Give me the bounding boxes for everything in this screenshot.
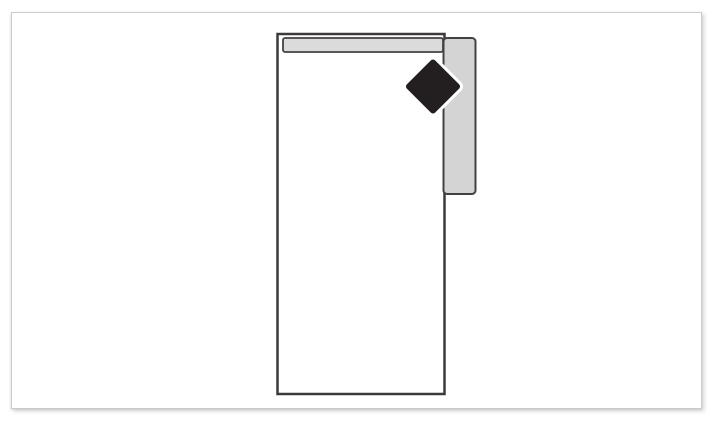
top-rail: [283, 38, 443, 52]
right-side-rail: [444, 38, 476, 194]
furniture-plan-diagram: [0, 0, 720, 428]
diagram-canvas: [0, 0, 720, 428]
